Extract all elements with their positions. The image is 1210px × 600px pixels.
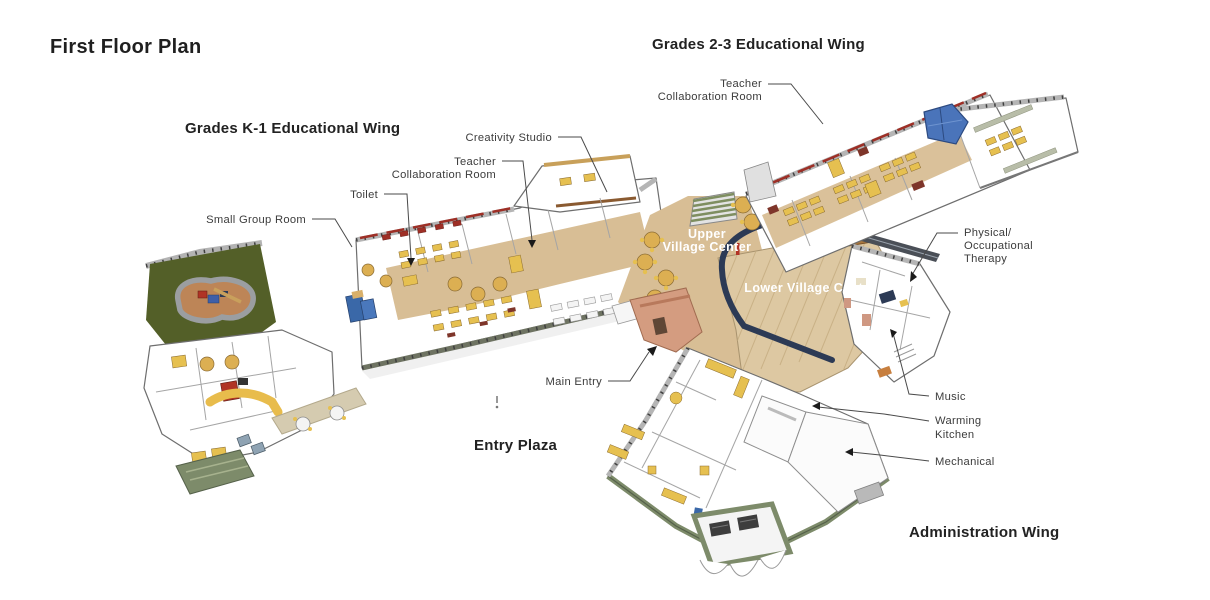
floor-plan-canvas: First Floor Plan Grades K-1 Educational … bbox=[0, 0, 1210, 600]
small-group-room-label: Small Group Room bbox=[206, 214, 306, 226]
page-title: First Floor Plan bbox=[50, 36, 201, 58]
k1-west-cluster bbox=[144, 330, 366, 494]
entry-vestibule bbox=[694, 504, 790, 576]
creativity-studio-label: Creativity Studio bbox=[465, 132, 552, 144]
warming-kitchen-label-2: Kitchen bbox=[935, 429, 974, 441]
k1-wing-building bbox=[346, 156, 672, 368]
pt-label-3: Therapy bbox=[964, 253, 1007, 265]
floor-plan-rendering: First Floor Plan Grades K-1 Educational … bbox=[0, 0, 1210, 600]
warming-kitchen-label-1: Warming bbox=[935, 415, 981, 427]
admin-wing-building bbox=[607, 348, 888, 576]
g23-wing-label: Grades 2-3 Educational Wing bbox=[652, 36, 865, 53]
entry-plaza-label: Entry Plaza bbox=[474, 437, 558, 454]
pt-music-building bbox=[842, 246, 950, 382]
pt-label-1: Physical/ bbox=[964, 227, 1012, 239]
admin-wing-label: Administration Wing bbox=[909, 524, 1059, 541]
leader-small-group bbox=[312, 219, 352, 247]
leader-teacher-collab-g23 bbox=[768, 84, 823, 124]
teacher-collab-k1-label-2: Collaboration Room bbox=[392, 169, 496, 181]
pt-label-2: Occupational bbox=[964, 240, 1033, 252]
music-label: Music bbox=[935, 391, 966, 403]
teacher-collab-g23-label-1: Teacher bbox=[720, 78, 762, 90]
plaza-sapling bbox=[496, 396, 499, 408]
upper-village-label-2: Village Center bbox=[663, 240, 752, 254]
leader-main-entry bbox=[608, 352, 649, 381]
teacher-collab-k1-label-1: Teacher bbox=[454, 156, 496, 168]
toilet-label: Toilet bbox=[350, 189, 379, 201]
upper-village-label-1: Upper bbox=[688, 227, 726, 241]
k1-wing-label: Grades K-1 Educational Wing bbox=[185, 120, 400, 137]
teacher-collab-g23-label-2: Collaboration Room bbox=[658, 91, 762, 103]
lower-village-label: Lower Village Center bbox=[744, 281, 875, 295]
main-entry-label: Main Entry bbox=[546, 376, 603, 388]
mechanical-label: Mechanical bbox=[935, 456, 995, 468]
